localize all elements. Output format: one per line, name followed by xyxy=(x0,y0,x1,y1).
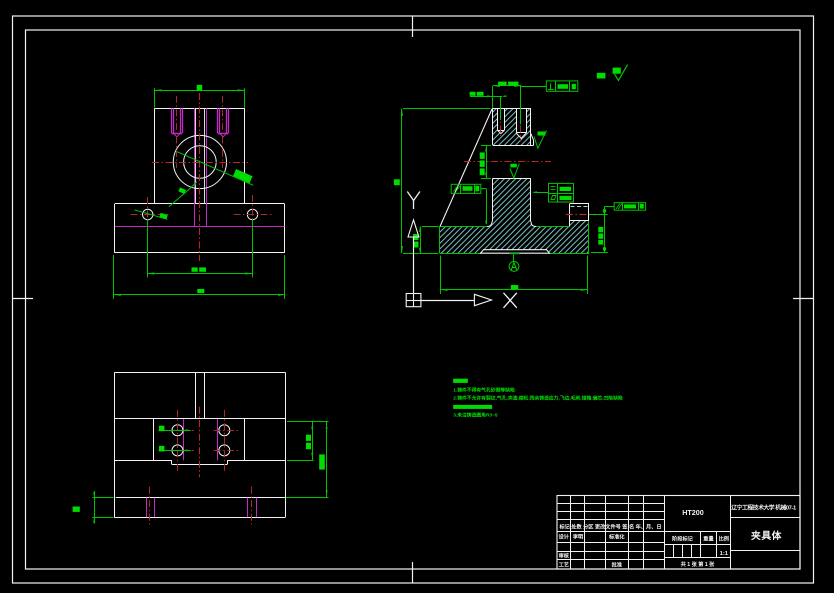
svg-text:设计: 设计 xyxy=(559,533,570,541)
svg-text:批准: 批准 xyxy=(612,561,623,569)
svg-text:1:1: 1:1 xyxy=(720,551,729,557)
svg-text:阶段标记: 阶段标记 xyxy=(672,535,694,543)
svg-text:李明: 李明 xyxy=(572,533,583,541)
svg-text:审核: 审核 xyxy=(559,551,570,559)
svg-text:夹具体: 夹具体 xyxy=(751,529,782,542)
svg-text:工艺: 工艺 xyxy=(559,561,569,569)
svg-text:标准化: 标准化 xyxy=(608,533,625,541)
svg-text:2.铸件不允许有裂纹,气孔,夹渣,缩松,残余铸造应力,飞边,: 2.铸件不允许有裂纹,气孔,夹渣,缩松,残余铸造应力,飞边,毛刺,错箱,偏芯,凹… xyxy=(453,394,623,401)
svg-text:重量: 重量 xyxy=(703,535,714,543)
svg-text:比例: 比例 xyxy=(719,535,729,543)
svg-text:标记 处数 分区 更改文件号 签 名 年、月、日: 标记 处数 分区 更改文件号 签 名 年、月、日 xyxy=(558,523,661,531)
svg-text:共 1 张 第 1 张: 共 1 张 第 1 张 xyxy=(681,560,716,568)
svg-text:HT200: HT200 xyxy=(682,508,704,517)
svg-text:3.未注铸造圆角R3~5: 3.未注铸造圆角R3~5 xyxy=(453,412,498,419)
svg-text:1.铸件不得有气孔砂眼等缺陷: 1.铸件不得有气孔砂眼等缺陷 xyxy=(453,386,515,393)
svg-text:辽宁工程技术大学 机械07-1: 辽宁工程技术大学 机械07-1 xyxy=(731,503,797,511)
